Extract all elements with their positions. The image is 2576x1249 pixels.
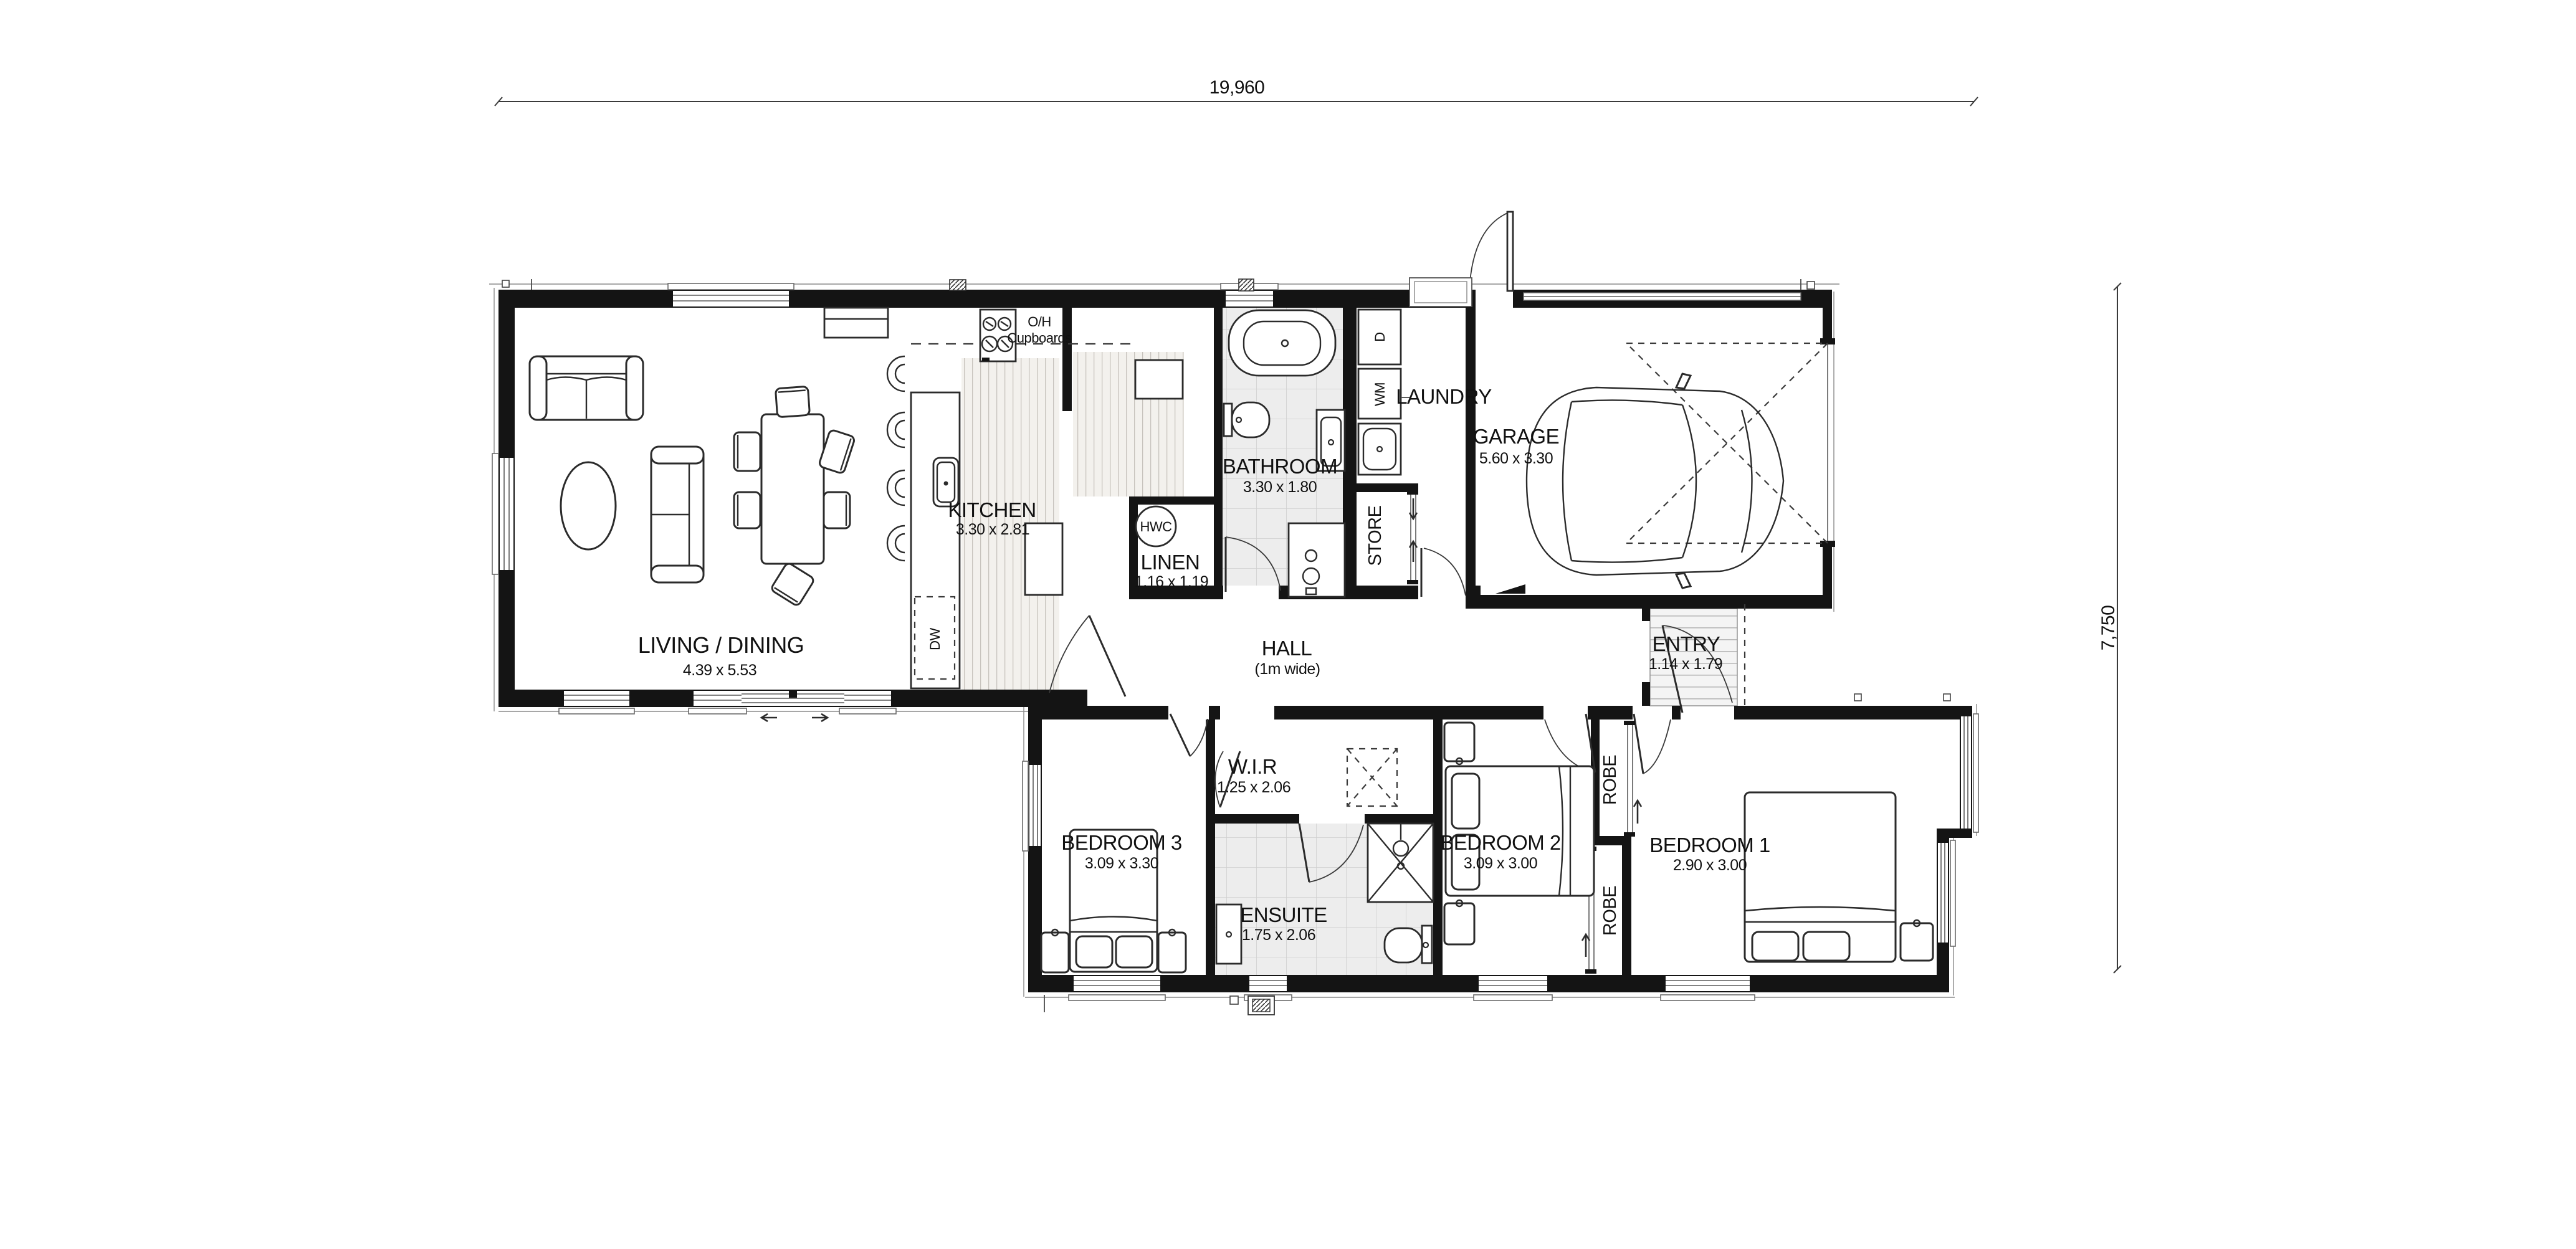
room-label-living: LIVING / DINING	[638, 632, 804, 658]
room-label-robe-bottom: ROBE	[1600, 886, 1620, 936]
bedroom1-furniture	[1745, 792, 1933, 962]
room-label-bathroom: BATHROOM	[1223, 455, 1337, 478]
dryer-icon: D	[1358, 310, 1401, 364]
window-bed1-east-lower	[1938, 840, 1955, 946]
vanity-icon-ensuite	[1216, 905, 1241, 964]
window-bed3-south	[1069, 976, 1165, 1000]
room-dims-wir: 1.25 x 2.06	[1217, 779, 1290, 796]
dining-chair	[734, 432, 760, 471]
service-point	[1854, 694, 1861, 701]
room-label-store: STORE	[1365, 505, 1385, 566]
room-dims-hall: (1m wide)	[1254, 660, 1320, 678]
floor-plan-drawing: DW	[0, 0, 2576, 1249]
pillow	[1803, 932, 1849, 961]
dimension-right: 7,750	[2098, 283, 2121, 973]
coffee-table-icon	[561, 462, 616, 549]
room-dims-living: 4.39 x 5.53	[683, 662, 756, 679]
room-dims-bedroom3: 3.09 x 3.30	[1085, 855, 1158, 872]
bedside-table	[1158, 929, 1186, 972]
sliding-door-living	[742, 690, 844, 721]
garage-top-cladding	[1524, 293, 1801, 300]
store-sliding-door	[1407, 490, 1418, 584]
vent-box	[1239, 279, 1254, 291]
external-landing	[1410, 278, 1472, 306]
fridge-space	[1135, 360, 1183, 399]
dining-chair	[734, 492, 760, 528]
room-dims-kitchen: 3.30 x 2.81	[956, 521, 1029, 538]
room-label-kitchen: KITCHEN	[948, 498, 1036, 521]
room-label-bedroom2: BEDROOM 2	[1440, 831, 1561, 854]
linen-cupboard: HWC	[1136, 506, 1176, 546]
pillow	[1116, 936, 1152, 967]
window-seat-cabinet	[824, 308, 888, 338]
bedside-table	[1901, 920, 1933, 961]
room-label-linen: LINEN	[1141, 551, 1200, 574]
door-bedroom2	[1545, 714, 1595, 772]
room-label-garage: GARAGE	[1473, 425, 1559, 448]
room-dims-entry: 1.14 x 1.79	[1649, 655, 1722, 673]
laundry-tub-icon	[1358, 424, 1401, 475]
window-living-south-2	[689, 691, 747, 714]
dining-chair	[775, 386, 809, 417]
door-living-hall	[1049, 615, 1125, 696]
bedside-table	[1444, 723, 1474, 764]
dimension-right-label: 7,750	[2098, 606, 2119, 651]
shower-icon	[1368, 824, 1433, 902]
room-label-bedroom1: BEDROOM 1	[1649, 833, 1770, 857]
kitchen-bench-return	[1025, 523, 1062, 595]
window-living-south-1	[559, 691, 634, 714]
room-dims-bedroom2: 3.09 x 3.00	[1464, 855, 1537, 872]
hwc-label: HWC	[1140, 519, 1172, 534]
room-label-bedroom3: BEDROOM 3	[1061, 831, 1182, 854]
toilet-icon-ensuite	[1385, 926, 1432, 963]
wir-shelf-zone	[1347, 749, 1397, 806]
dimension-top: 19,960	[495, 77, 1978, 106]
bedside-table	[1444, 900, 1474, 944]
bath-icon	[1229, 310, 1335, 376]
room-dims-bathroom: 3.30 x 1.80	[1243, 478, 1317, 496]
garage-door-tracks	[1626, 343, 1828, 543]
door-garage-passage	[1421, 548, 1466, 597]
sofa-icon-top	[530, 356, 643, 420]
window-bed1-east-upper	[1961, 714, 1978, 832]
oh-cupboards-line1: O/H	[1028, 314, 1051, 330]
toilet-icon-bathroom	[1224, 402, 1269, 437]
service-point	[502, 280, 509, 287]
room-label-robe-top: ROBE	[1600, 755, 1620, 805]
dryer-label: D	[1372, 332, 1388, 341]
window-living-west	[492, 454, 513, 574]
pillow	[1076, 936, 1112, 967]
room-label-entry: ENTRY	[1653, 632, 1720, 655]
washing-machine-icon: WM	[1358, 369, 1401, 419]
window-bed3-west	[1023, 761, 1041, 851]
bedside-table	[1041, 929, 1069, 972]
room-dims-ensuite: 1.75 x 2.06	[1242, 926, 1315, 944]
oh-cupboards-line2: Cupboards	[1007, 330, 1072, 346]
dining-table-icon	[734, 386, 856, 607]
floor-plan-page: DW	[0, 0, 2576, 1249]
door-bedroom3	[1170, 714, 1208, 756]
window-bed2-south	[1474, 976, 1552, 1000]
room-label-laundry: LAUNDRY	[1396, 385, 1492, 408]
door-bedroom1-lobby	[1634, 714, 1671, 774]
garage-step	[1496, 584, 1525, 594]
dining-chair	[824, 492, 850, 528]
living-furniture	[530, 356, 905, 607]
service-point	[1807, 282, 1815, 289]
room-label-ensuite: ENSUITE	[1240, 903, 1327, 926]
washing-machine-label: WM	[1372, 382, 1388, 406]
window-living-top	[668, 283, 794, 306]
vent-box	[950, 280, 966, 290]
sofa-icon-side	[651, 447, 704, 582]
service-point	[1944, 694, 1950, 701]
dining-chair	[770, 562, 815, 607]
room-label-hall: HALL	[1262, 637, 1312, 660]
external-door-garage-north	[1469, 212, 1513, 291]
room-dims-linen: 1.16 x 1.19	[1135, 573, 1208, 591]
window-bed1-south	[1661, 976, 1755, 1000]
room-label-wir: W.I.R	[1228, 755, 1277, 778]
window-living-south-3	[839, 691, 896, 714]
pillow	[1752, 932, 1798, 961]
room-dims-bedroom1: 2.90 x 3.00	[1673, 857, 1747, 874]
wir-fixtures	[1347, 749, 1397, 806]
laundry-chute-unit	[1289, 523, 1345, 597]
dimension-top-label: 19,960	[1209, 77, 1265, 98]
bar-stools	[887, 356, 905, 561]
pillow	[1452, 774, 1479, 829]
room-dims-garage: 5.60 x 3.30	[1479, 450, 1553, 467]
car-icon	[1527, 374, 1783, 588]
heat-pump-unit	[1230, 996, 1274, 1015]
robe-top-sliding-door	[1624, 721, 1641, 837]
dishwasher-label: DW	[927, 627, 943, 650]
garage-vehicle-door	[1626, 338, 1835, 547]
